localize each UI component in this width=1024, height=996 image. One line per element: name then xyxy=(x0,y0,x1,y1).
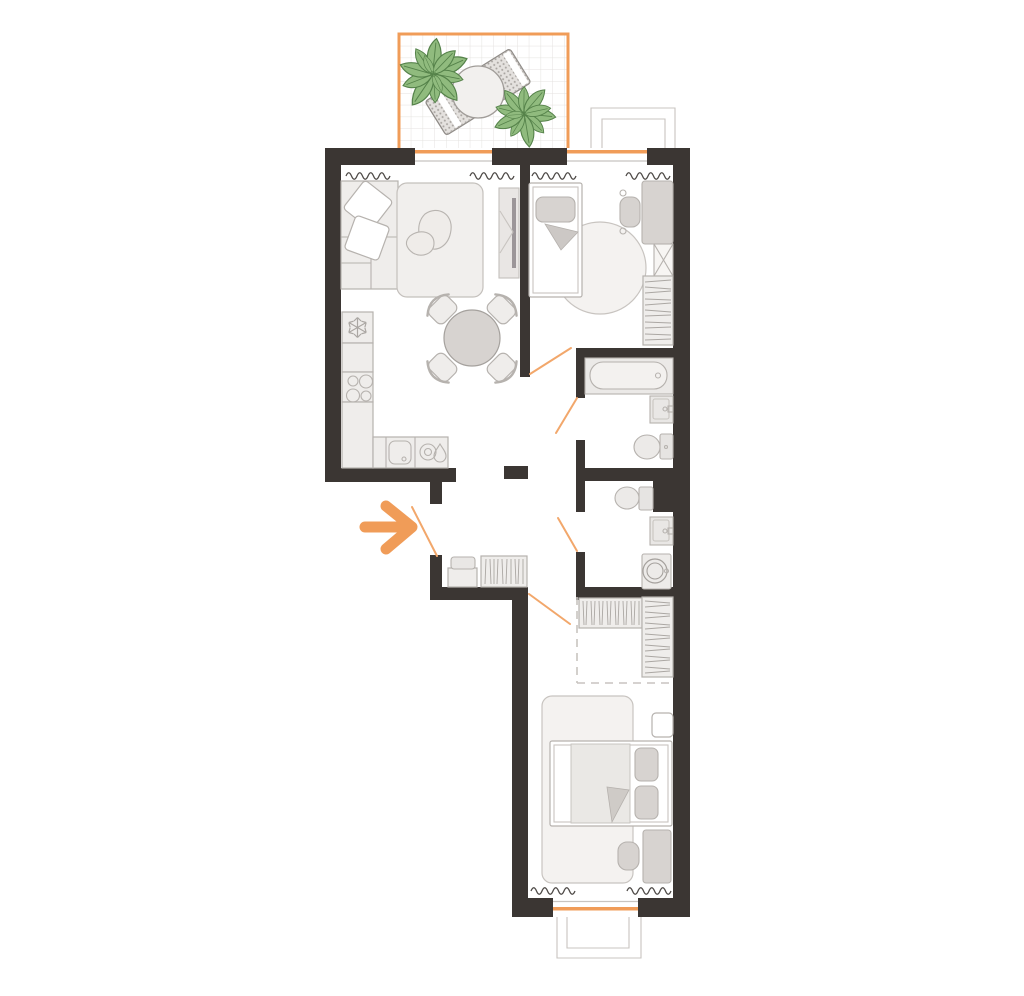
duct-shaft xyxy=(653,481,673,512)
wall-segment xyxy=(430,482,442,504)
entry-bench xyxy=(448,557,477,587)
wash-basin xyxy=(650,396,673,423)
pillow xyxy=(635,786,658,819)
radiator xyxy=(627,888,671,895)
window-kids-room xyxy=(567,148,647,165)
bathtub xyxy=(585,358,673,394)
terrace xyxy=(398,34,568,156)
dining-table xyxy=(423,290,521,387)
toilet xyxy=(634,434,673,459)
lower-balcony-outline xyxy=(557,917,641,958)
wardrobe xyxy=(654,244,673,276)
wall-segment xyxy=(673,148,690,917)
juliet-balcony-outline xyxy=(591,108,675,149)
wall-segment xyxy=(576,468,673,481)
wall-segment xyxy=(512,587,528,917)
blanket xyxy=(571,744,630,823)
door-swing-bedroom xyxy=(529,594,570,624)
stove xyxy=(342,372,373,402)
desk xyxy=(642,181,673,244)
floor-plan-canvas xyxy=(0,0,1024,996)
hallway xyxy=(448,556,527,587)
wall-segment xyxy=(325,148,341,482)
walk-in-closet xyxy=(577,597,673,683)
desk-chair xyxy=(620,190,640,234)
corner-sofa xyxy=(341,180,398,289)
wall-segment xyxy=(325,468,456,482)
wall-segment xyxy=(576,348,673,359)
desk xyxy=(643,830,671,883)
radiator xyxy=(532,173,576,180)
window-bedroom xyxy=(553,898,638,917)
living-room-kitchen xyxy=(341,173,521,468)
door-swing-kids-room xyxy=(530,348,571,374)
bedroom xyxy=(531,597,673,894)
bathroom xyxy=(585,358,673,459)
radiator xyxy=(626,173,670,180)
throw-blanket xyxy=(406,232,434,255)
kids-room xyxy=(529,173,673,345)
hall-wardrobe xyxy=(481,556,527,587)
tv-unit xyxy=(499,188,519,278)
door-swing-wc xyxy=(558,518,577,551)
kitchen-counter xyxy=(342,343,373,372)
chair xyxy=(618,842,639,870)
garden-table xyxy=(452,66,504,118)
pillow xyxy=(635,748,658,781)
floor-plan xyxy=(0,0,1024,996)
kitchen-counter xyxy=(342,402,373,468)
radiator xyxy=(531,888,575,895)
toilet xyxy=(615,487,653,510)
closet-rail xyxy=(579,598,642,628)
door-swing-bathroom xyxy=(556,398,577,433)
radiator xyxy=(470,173,514,180)
washing-machine xyxy=(642,554,671,589)
shelving xyxy=(643,276,673,345)
sofa-bed xyxy=(397,183,483,297)
kitchen xyxy=(342,312,448,468)
single-bed xyxy=(529,183,582,297)
closet-rail xyxy=(642,597,673,677)
wash-basin xyxy=(650,517,673,545)
bedside-table xyxy=(652,713,673,737)
radiator xyxy=(346,173,390,180)
window-living-room xyxy=(415,148,492,165)
wall-segment xyxy=(576,348,585,398)
door-swing-entrance xyxy=(412,507,437,556)
double-bed xyxy=(550,741,672,826)
wall-segment xyxy=(504,466,528,479)
pillow xyxy=(536,197,575,222)
entrance-arrow-icon xyxy=(365,506,412,549)
